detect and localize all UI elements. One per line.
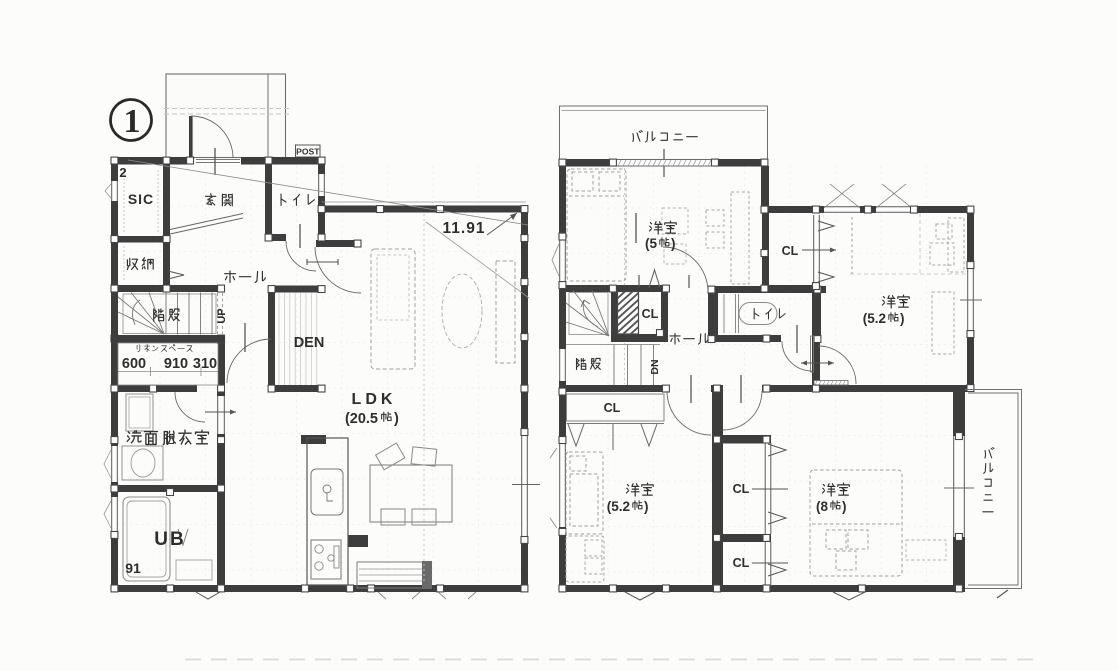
svg-text:DEN: DEN (294, 335, 325, 351)
svg-text:(5.2: (5.2 (863, 311, 886, 326)
svg-text:): ) (671, 236, 676, 251)
svg-text:11.91: 11.91 (443, 220, 486, 237)
svg-text:UP: UP (216, 308, 228, 323)
svg-text:910: 910 (164, 356, 188, 372)
svg-text:CL: CL (604, 401, 621, 415)
svg-text:2: 2 (119, 165, 126, 180)
svg-text:): ) (644, 499, 649, 514)
svg-text:1: 1 (124, 103, 141, 140)
svg-text:POST: POST (296, 147, 320, 157)
svg-text:(5.2: (5.2 (607, 499, 630, 514)
svg-text:(8: (8 (816, 499, 828, 514)
svg-text:DN: DN (649, 359, 661, 374)
svg-text:): ) (842, 499, 847, 514)
svg-text:CL: CL (733, 556, 750, 570)
svg-text:CL: CL (782, 244, 799, 258)
svg-text:310: 310 (193, 356, 217, 372)
svg-text:SIC: SIC (128, 191, 154, 207)
svg-text:600: 600 (122, 356, 146, 372)
svg-text:91: 91 (125, 560, 141, 576)
svg-text:CL: CL (733, 482, 750, 496)
svg-text:LDK: LDK (352, 391, 397, 408)
svg-text:(5: (5 (645, 236, 657, 251)
svg-text:CL: CL (642, 307, 659, 321)
svg-text:): ) (394, 411, 399, 427)
svg-text:(20.5: (20.5 (345, 411, 378, 427)
svg-text:): ) (900, 311, 905, 326)
svg-text:UB: UB (154, 529, 185, 550)
